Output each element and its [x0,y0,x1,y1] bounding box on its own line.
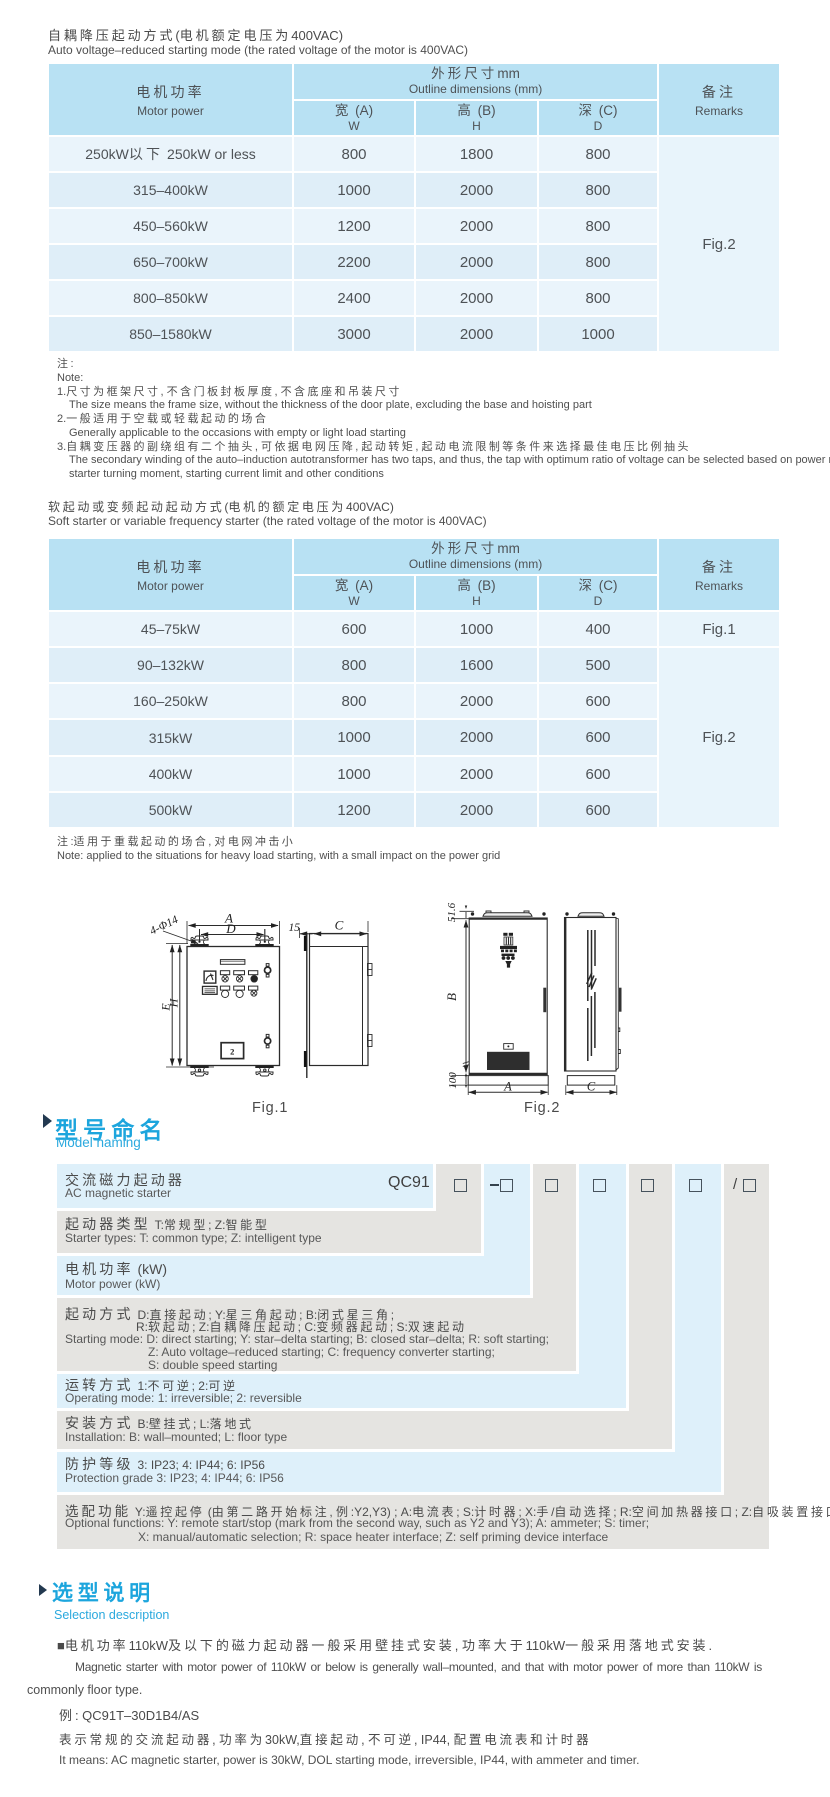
svg-text:B: B [444,993,459,1001]
svg-text:2: 2 [230,1046,234,1056]
svg-text:C: C [335,918,344,933]
svg-text:4-Φ14: 4-Φ14 [148,914,180,938]
svg-text:51.6: 51.6 [446,902,458,922]
svg-text:15: 15 [289,922,301,934]
svg-text:A: A [503,1080,512,1094]
svg-text:100: 100 [447,1072,459,1089]
svg-text:C: C [587,1080,596,1094]
svg-text:H: H [167,997,181,1008]
svg-text:D: D [225,921,236,936]
